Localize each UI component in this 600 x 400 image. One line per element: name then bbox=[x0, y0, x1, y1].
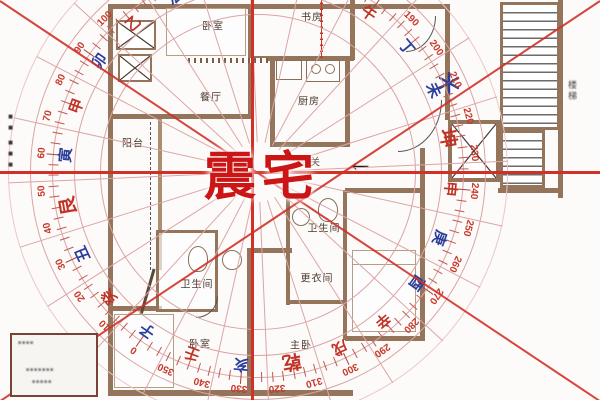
mountain-char: 乾 bbox=[280, 348, 303, 378]
watermark-text: ■■■■■ bbox=[32, 379, 52, 385]
degree-label: 240 bbox=[468, 182, 480, 200]
compass-tick bbox=[458, 168, 468, 169]
house-type-title: 震宅 bbox=[204, 135, 320, 210]
watermark-box: ■■■■ ■■■■■■■ ■■■■■ bbox=[10, 333, 98, 397]
degree-label: 60 bbox=[36, 147, 48, 159]
degree-label: 50 bbox=[36, 185, 48, 197]
mountain-char: 亥 bbox=[233, 354, 250, 376]
degree-label: 330 bbox=[230, 382, 248, 394]
staircase bbox=[500, 2, 560, 130]
mountain-char: 寅 bbox=[54, 147, 76, 164]
watermark-text: ■■■■■■■ bbox=[26, 367, 54, 373]
degree-label: 320 bbox=[268, 382, 286, 394]
wall-stairs-bottom bbox=[498, 188, 563, 193]
degree-label: 230 bbox=[468, 144, 480, 162]
fengshui-floorplan: 卧室书房餐厅厨房阳台玄关卫生间卫生间更衣间主卧卧室 ← 楼梯 010203040… bbox=[0, 0, 600, 400]
mountain-char: 申 bbox=[440, 181, 462, 198]
stairs-label: 楼梯 bbox=[566, 80, 579, 102]
left-scale-text: ■■ ■■■ bbox=[6, 112, 15, 171]
watermark-text: ■■■■ bbox=[18, 340, 34, 346]
